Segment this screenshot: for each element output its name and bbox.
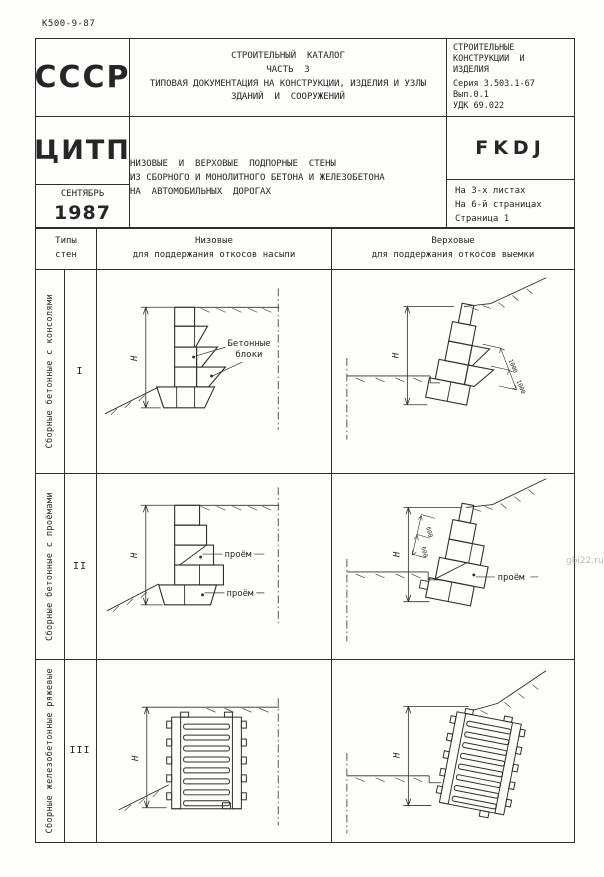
header-block: СССР СТРОИТЕЛЬНЫЙ КАТАЛОГ ЧАСТЬ 3 ТИПОВА… [35,38,575,228]
row2-category-cell: Сборные бетонные с проёмами [36,473,64,659]
opening-label: проём [498,573,525,583]
row2-type-label: II [73,561,87,572]
sheets-line-2: На 6-й страницах [455,199,542,213]
classification-line-3: ИЗДЕЛИЯ [453,65,489,76]
height-symbol: Н [130,355,140,362]
wall-blocks [426,300,505,409]
catalog-line-2: ЧАСТЬ 3 [266,64,309,78]
height-symbol: Н [130,552,140,559]
drawing-row3-low: Н [97,660,331,842]
header-cell-code: FKDJ [446,116,575,180]
column-header-low: Низовые для поддержания откосов насыпи [97,229,331,269]
document-code: К500-9-87 [42,19,95,29]
row1-category-cell: Сборные бетонные с консолями [36,269,64,473]
opening-label-1: проём [224,550,252,560]
types-header-line1: Типы [55,235,77,249]
row2-type-cell: II [64,473,96,659]
header-cell-sheets: На 3-х листах На 6-й страницах Страница … [446,179,575,228]
dim-label-2: 1000 [515,379,527,395]
publisher-label: ЦИТП [34,135,131,166]
high-header-line1: Верховые [431,235,474,249]
height-dimension [141,505,175,605]
catalog-line-3: ТИПОВАЯ ДОКУМЕНТАЦИЯ НА КОНСТРУКЦИИ, ИЗД… [150,78,426,92]
height-dimension [141,307,175,408]
crib-wall [433,706,527,822]
header-cell-publisher: ЦИТП [35,116,130,185]
title-line-3: НА АВТОМОБИЛЬНЫХ ДОРОГАХ [130,186,271,200]
udk-number: УДК 69.022 [453,101,504,112]
header-cell-catalog: СТРОИТЕЛЬНЫЙ КАТАЛОГ ЧАСТЬ 3 ТИПОВАЯ ДОК… [129,38,447,117]
height-symbol: Н [391,352,401,359]
wall-blocks [418,498,499,607]
low-header-line1: Низовые [195,235,233,249]
column-header-high: Верховые для поддержания откосов выемки [332,229,574,269]
blocks-label-line1: Бетонные [227,339,270,349]
height-symbol: Н [131,755,141,762]
header-cell-date: СЕНТЯБРЬ 1987 [35,184,130,228]
catalog-page: К500-9-87 СССР СТРОИТЕЛЬНЫЙ КАТАЛОГ ЧАСТ… [0,0,604,877]
blocks-label-line2: блоки [235,349,262,360]
drawing-row3-high: Н [332,660,574,842]
height-symbol: Н [392,551,402,558]
classification-line-2: КОНСТРУКЦИИ И [453,54,525,65]
drawing-row1-low: Н Бетонные блоки [97,270,331,473]
issue-number: Вып.0.1 [453,90,489,101]
wall-blocks [157,307,226,408]
types-header-line2: стен [55,249,77,263]
header-cell-country: СССР [35,38,130,117]
date-month: СЕНТЯБРЬ [61,188,104,202]
code-label: FKDJ [475,137,546,159]
row1-category-label: Сборные бетонные с консолями [45,294,55,449]
country-label: СССР [34,60,130,95]
catalog-line-4: ЗДАНИЙ И СООРУЖЕНИЙ [231,91,345,105]
row1-type-cell: I [64,269,96,473]
row2-category-label: Сборные бетонные с проёмами [45,492,55,641]
high-header-line2: для поддержания откосов выемки [372,249,535,263]
title-line-2: ИЗ СБОРНОГО И МОНОЛИТНОГО БЕТОНА И ЖЕЛЕЗ… [130,172,385,186]
column-header-types: Типы стен [36,229,96,269]
date-year: 1987 [54,202,111,224]
row3-type-cell: III [64,659,96,842]
drawing-row2-high: Н проём 600 600 [332,474,574,659]
ground-lines [347,278,546,440]
drawing-row2-low: Н проём проём [97,474,331,659]
sheets-line-3: Страница 1 [455,213,509,227]
series-number: Серия 3.503.1-67 [453,79,535,90]
dim-label-1: 1000 [507,358,519,374]
opening-label-2: проём [226,589,254,599]
classification-line-1: СТРОИТЕЛЬНЫЕ [453,43,514,54]
ground-lines [347,479,546,642]
crib-wall [167,712,247,809]
wall-types-table: Типы стен Низовые для поддержания откосо… [35,228,575,843]
wall-blocks [159,505,224,605]
sheets-line-1: На 3-х листах [455,185,525,199]
catalog-line-1: СТРОИТЕЛЬНЫЙ КАТАЛОГ [231,50,345,64]
row3-type-label: III [69,745,90,756]
watermark: gbi22.ru [566,556,604,566]
row1-type-label: I [76,366,83,377]
row3-category-label: Сборные железобетонные ряжевые [45,668,55,834]
low-header-line2: для поддержания откосов насыпи [133,249,296,263]
header-cell-classification: СТРОИТЕЛЬНЫЕ КОНСТРУКЦИИ И ИЗДЕЛИЯ Серия… [446,38,575,117]
header-cell-title: НИЗОВЫЕ И ВЕРХОВЫЕ ПОДПОРНЫЕ СТЕНЫ ИЗ СБ… [129,116,447,228]
title-line-1: НИЗОВЫЕ И ВЕРХОВЫЕ ПОДПОРНЫЕ СТЕНЫ [130,158,336,172]
row3-category-cell: Сборные железобетонные ряжевые [36,659,64,842]
height-symbol: Н [392,752,402,759]
drawing-row1-high: Н 1000 1000 [332,270,574,473]
